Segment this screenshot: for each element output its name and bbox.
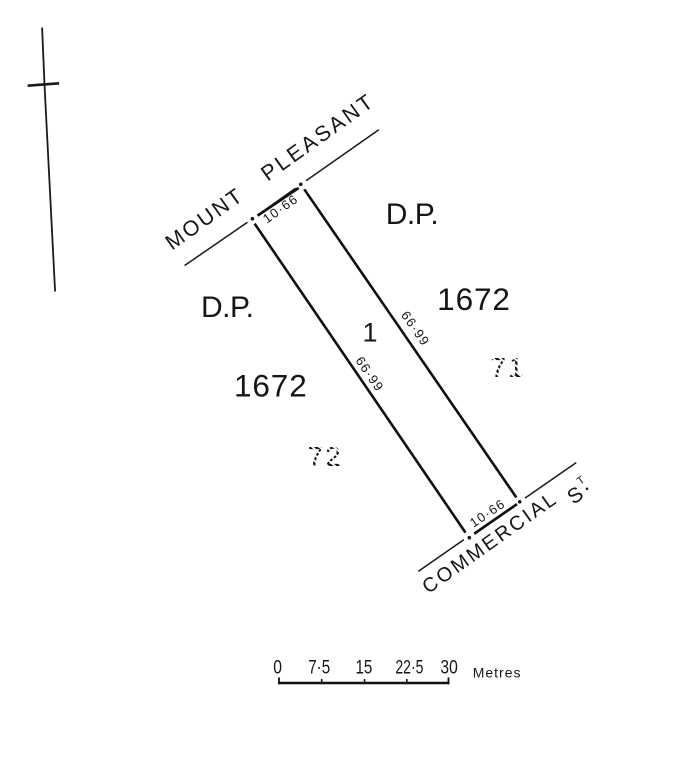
svg-text:7·5: 7·5: [308, 656, 330, 678]
svg-text:0: 0: [273, 656, 282, 678]
svg-text:1672: 1672: [234, 368, 308, 404]
svg-text:30: 30: [440, 656, 458, 678]
svg-text:72: 72: [308, 441, 343, 472]
svg-text:D.P.: D.P.: [386, 198, 438, 231]
svg-text:71: 71: [490, 352, 525, 383]
svg-text:Metres: Metres: [473, 664, 522, 680]
svg-text:D.P.: D.P.: [201, 291, 253, 324]
svg-text:1672: 1672: [437, 281, 511, 317]
svg-text:1: 1: [362, 317, 377, 347]
svg-text:22·5: 22·5: [395, 656, 423, 678]
svg-text:15: 15: [355, 656, 372, 678]
